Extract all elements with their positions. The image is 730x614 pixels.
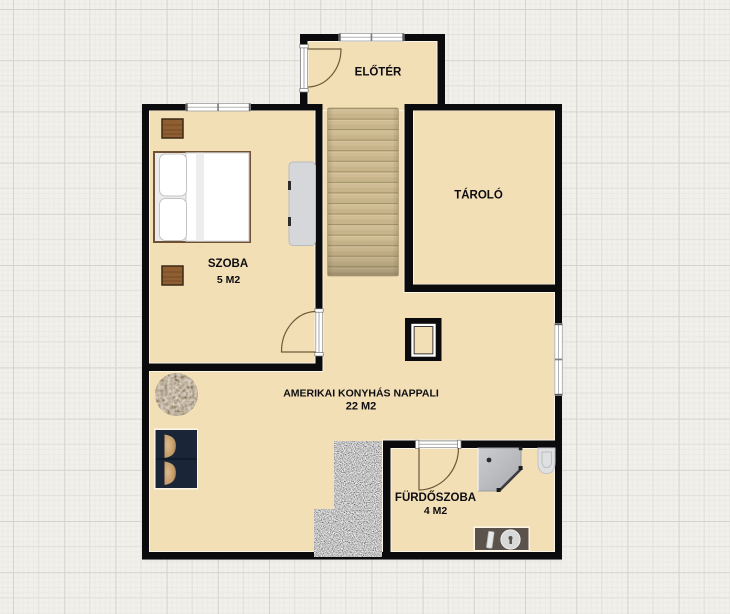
svg-text:AMERIKAI KONYHÁS NAPPALI: AMERIKAI KONYHÁS NAPPALI xyxy=(283,387,439,400)
svg-text:SZOBA: SZOBA xyxy=(208,258,248,270)
svg-text:TÁROLÓ: TÁROLÓ xyxy=(454,189,503,202)
svg-text:FÜRDŐSZOBA: FÜRDŐSZOBA xyxy=(395,491,476,504)
svg-text:22 M2: 22 M2 xyxy=(346,401,377,413)
svg-text:4 M2: 4 M2 xyxy=(424,505,448,517)
svg-text:5 M2: 5 M2 xyxy=(217,274,241,286)
svg-text:ELŐTÉR: ELŐTÉR xyxy=(355,66,402,79)
